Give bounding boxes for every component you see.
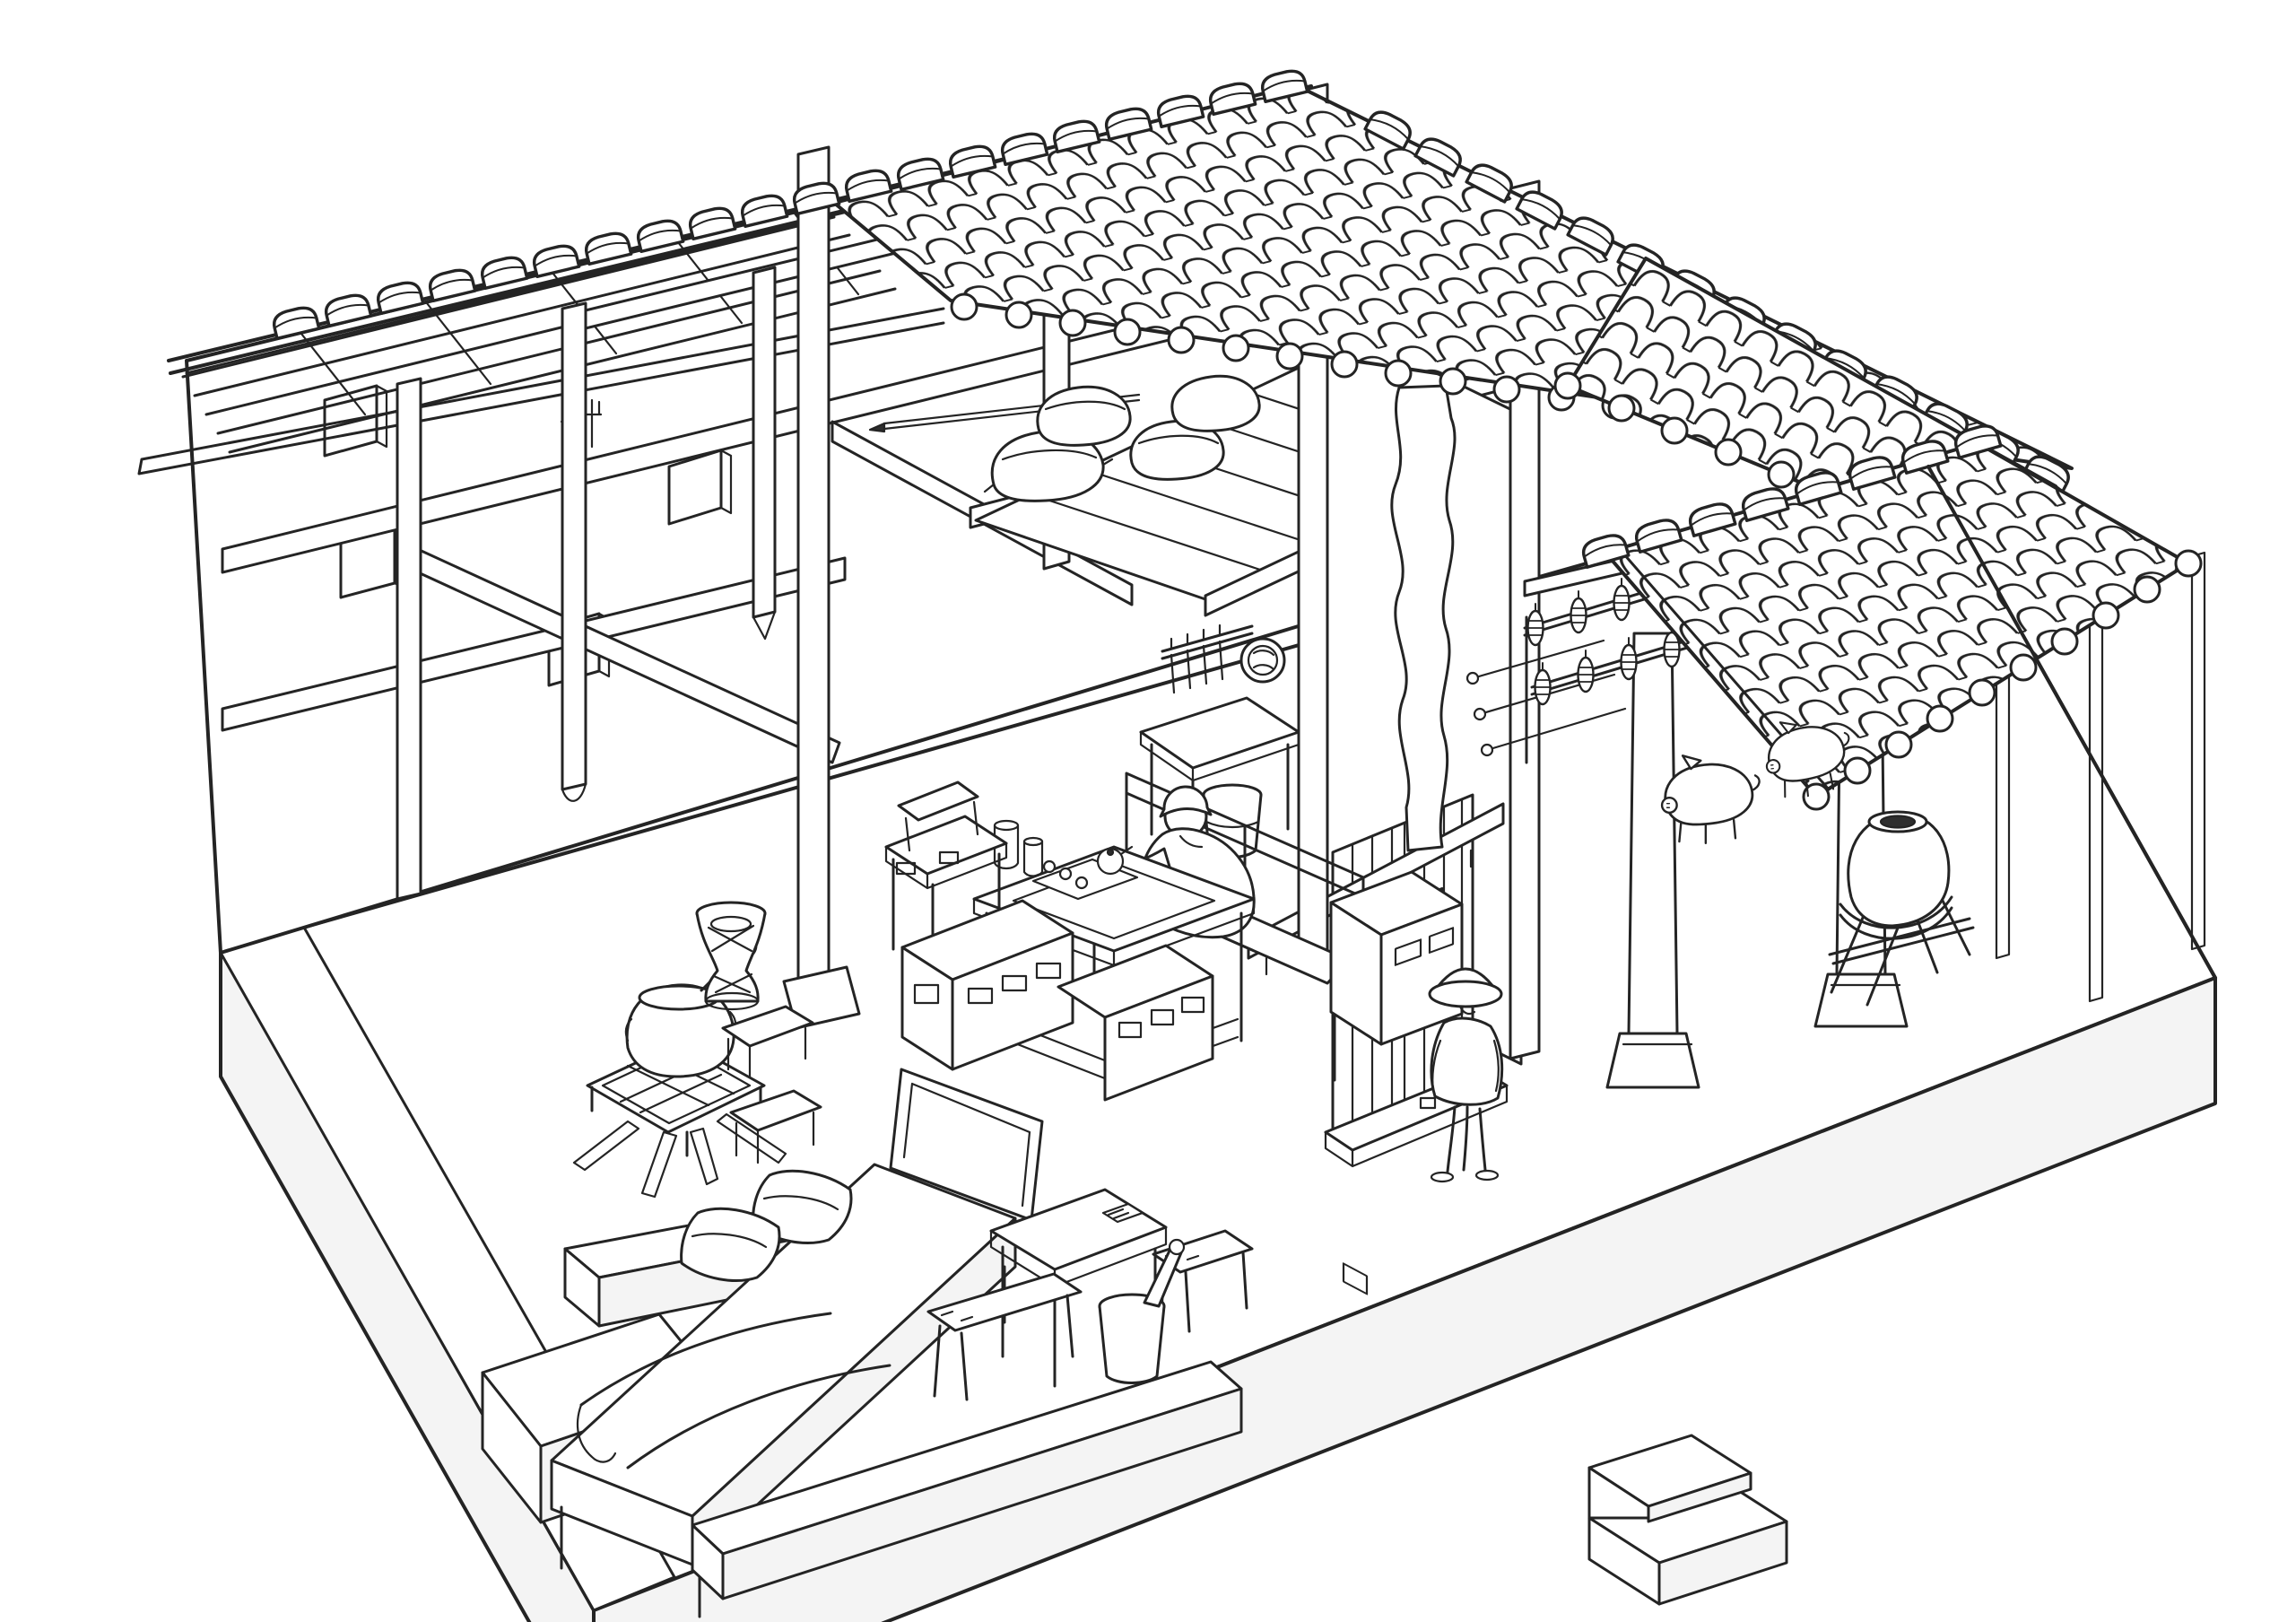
wall-sieve (1241, 639, 1284, 682)
entry-steps (1589, 1435, 1787, 1604)
house-cutaway-svg (0, 0, 2296, 1622)
house-cutaway-figure (0, 0, 2296, 1622)
illustration-stage (0, 0, 2296, 1622)
